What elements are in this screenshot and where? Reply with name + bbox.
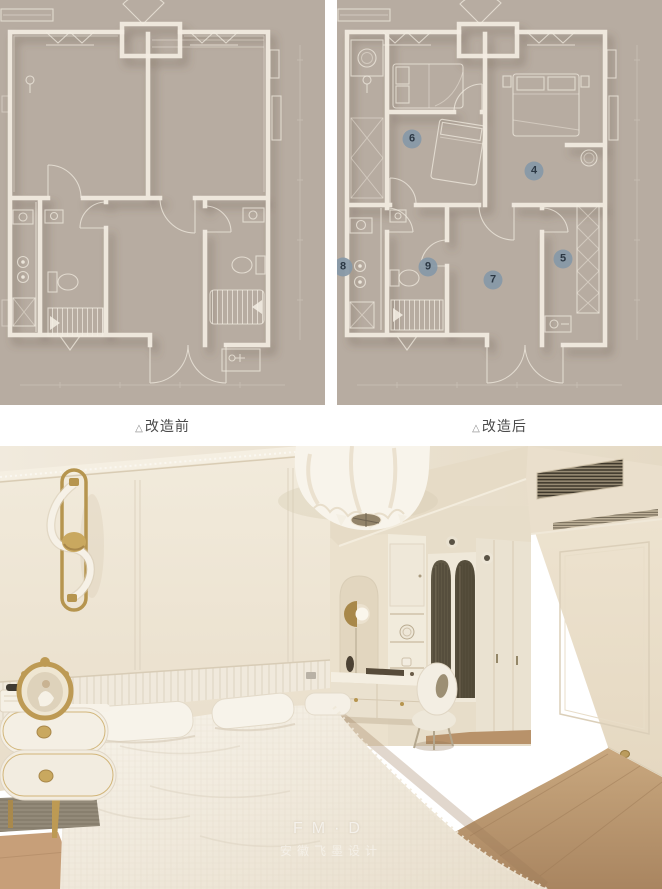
pillow	[305, 693, 351, 715]
gold-knob	[37, 726, 51, 738]
bedroom-photo-image	[0, 446, 662, 889]
gold-knob	[39, 770, 53, 782]
wardrobe	[476, 538, 531, 744]
floor-plan-after-image	[337, 0, 662, 405]
floor-plan-before-image	[0, 0, 325, 405]
recessed-spotlight	[484, 555, 490, 561]
decor-cup	[402, 658, 411, 666]
switch-plate	[306, 672, 316, 679]
caption-triangle-icon: △	[135, 423, 144, 434]
caption-before: △改造前	[135, 416, 190, 436]
floor-plans-row: 456789	[0, 0, 662, 405]
dressing-nook	[330, 506, 531, 751]
decor-vase	[346, 656, 354, 672]
article-section: 456789 △改造前 △改造后	[0, 0, 662, 889]
recessed-spotlight	[449, 539, 455, 545]
decor-plate	[400, 625, 414, 639]
floor-plan-before-figure	[0, 0, 325, 405]
drawer	[0, 750, 116, 800]
caption-after: △改造后	[472, 416, 527, 436]
captions-row: △改造前 △改造后	[0, 405, 662, 446]
caption-triangle-icon: △	[472, 423, 481, 434]
floor-plan-after-figure: 456789	[337, 0, 662, 405]
bedroom-photo: FM·D 安徽飞墨设计	[0, 446, 662, 889]
